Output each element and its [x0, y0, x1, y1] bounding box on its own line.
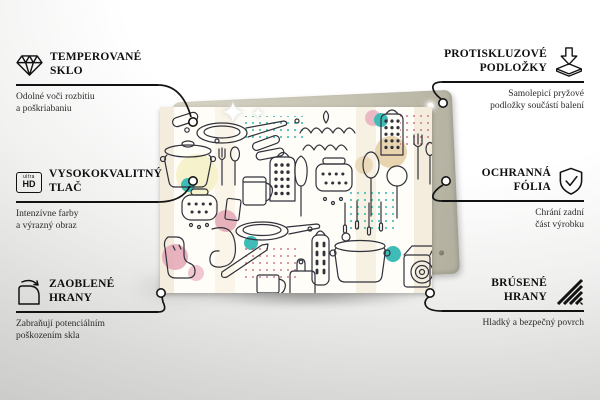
glass-board [160, 107, 432, 293]
rounded-corner-icon [16, 279, 42, 305]
callout-title: ZAOBLENÉ HRANY [49, 278, 115, 305]
shield-check-icon [558, 167, 584, 196]
callout-polished-edges: BRÚSENÉ HRANY Hladký a bezpečný povrch [442, 276, 584, 329]
dot-grids [244, 113, 432, 279]
callout-subtitle: Samolepicí pryžové podložky součástí bal… [442, 88, 584, 113]
callout-tempered-glass: TEMPEROVANÉ SKLO Odolné voči rozbitiu a … [16, 50, 158, 116]
callout-title: OCHRANNÁ FÓLIA [442, 167, 551, 194]
callout-rounded-edges: ZAOBLENÉ HRANY Zabraňují potenciálním po… [16, 277, 158, 343]
pad-hole [439, 250, 444, 255]
callout-subtitle: Chrání zadní část výrobku [442, 207, 584, 232]
callout-subtitle: Intenzívne farby a výrazný obraz [16, 208, 158, 233]
kitchen-doodle-pattern [160, 107, 432, 293]
callout-title: VYSOKOKVALITNÝ TLAČ [49, 168, 162, 195]
callout-subtitle: Hladký a bezpečný povrch [442, 317, 584, 329]
sparkle-icon [252, 107, 264, 119]
polished-edges-icon [554, 277, 584, 305]
diamond-icon [16, 54, 43, 77]
callout-title: TEMPEROVANÉ SKLO [50, 51, 141, 78]
ultra-hd-icon: ultra HD [16, 172, 42, 193]
callout-protective-film: OCHRANNÁ FÓLIA Chrání zadní část výrobku [442, 166, 584, 232]
callout-title: PROTISKLUZOVÉ PODLOŽKY [442, 48, 547, 75]
callout-anti-slip-pads: PROTISKLUZOVÉ PODLOŽKY Samolepicí pryžov… [442, 47, 584, 113]
callout-title: BRÚSENÉ HRANY [442, 277, 547, 304]
product-feature-infographic: TEMPEROVANÉ SKLO Odolné voči rozbitiu a … [0, 0, 600, 400]
callout-subtitle: Zabraňují potenciálním poškozením skla [16, 318, 158, 343]
sparkle-icon [222, 101, 244, 123]
callout-high-quality-print: ultra HD VYSOKOKVALITNÝ TLAČ Intenzívne … [16, 167, 158, 233]
anti-slip-pads-icon [554, 47, 584, 78]
callout-subtitle: Odolné voči rozbitiu a poškriabaniu [16, 91, 158, 116]
